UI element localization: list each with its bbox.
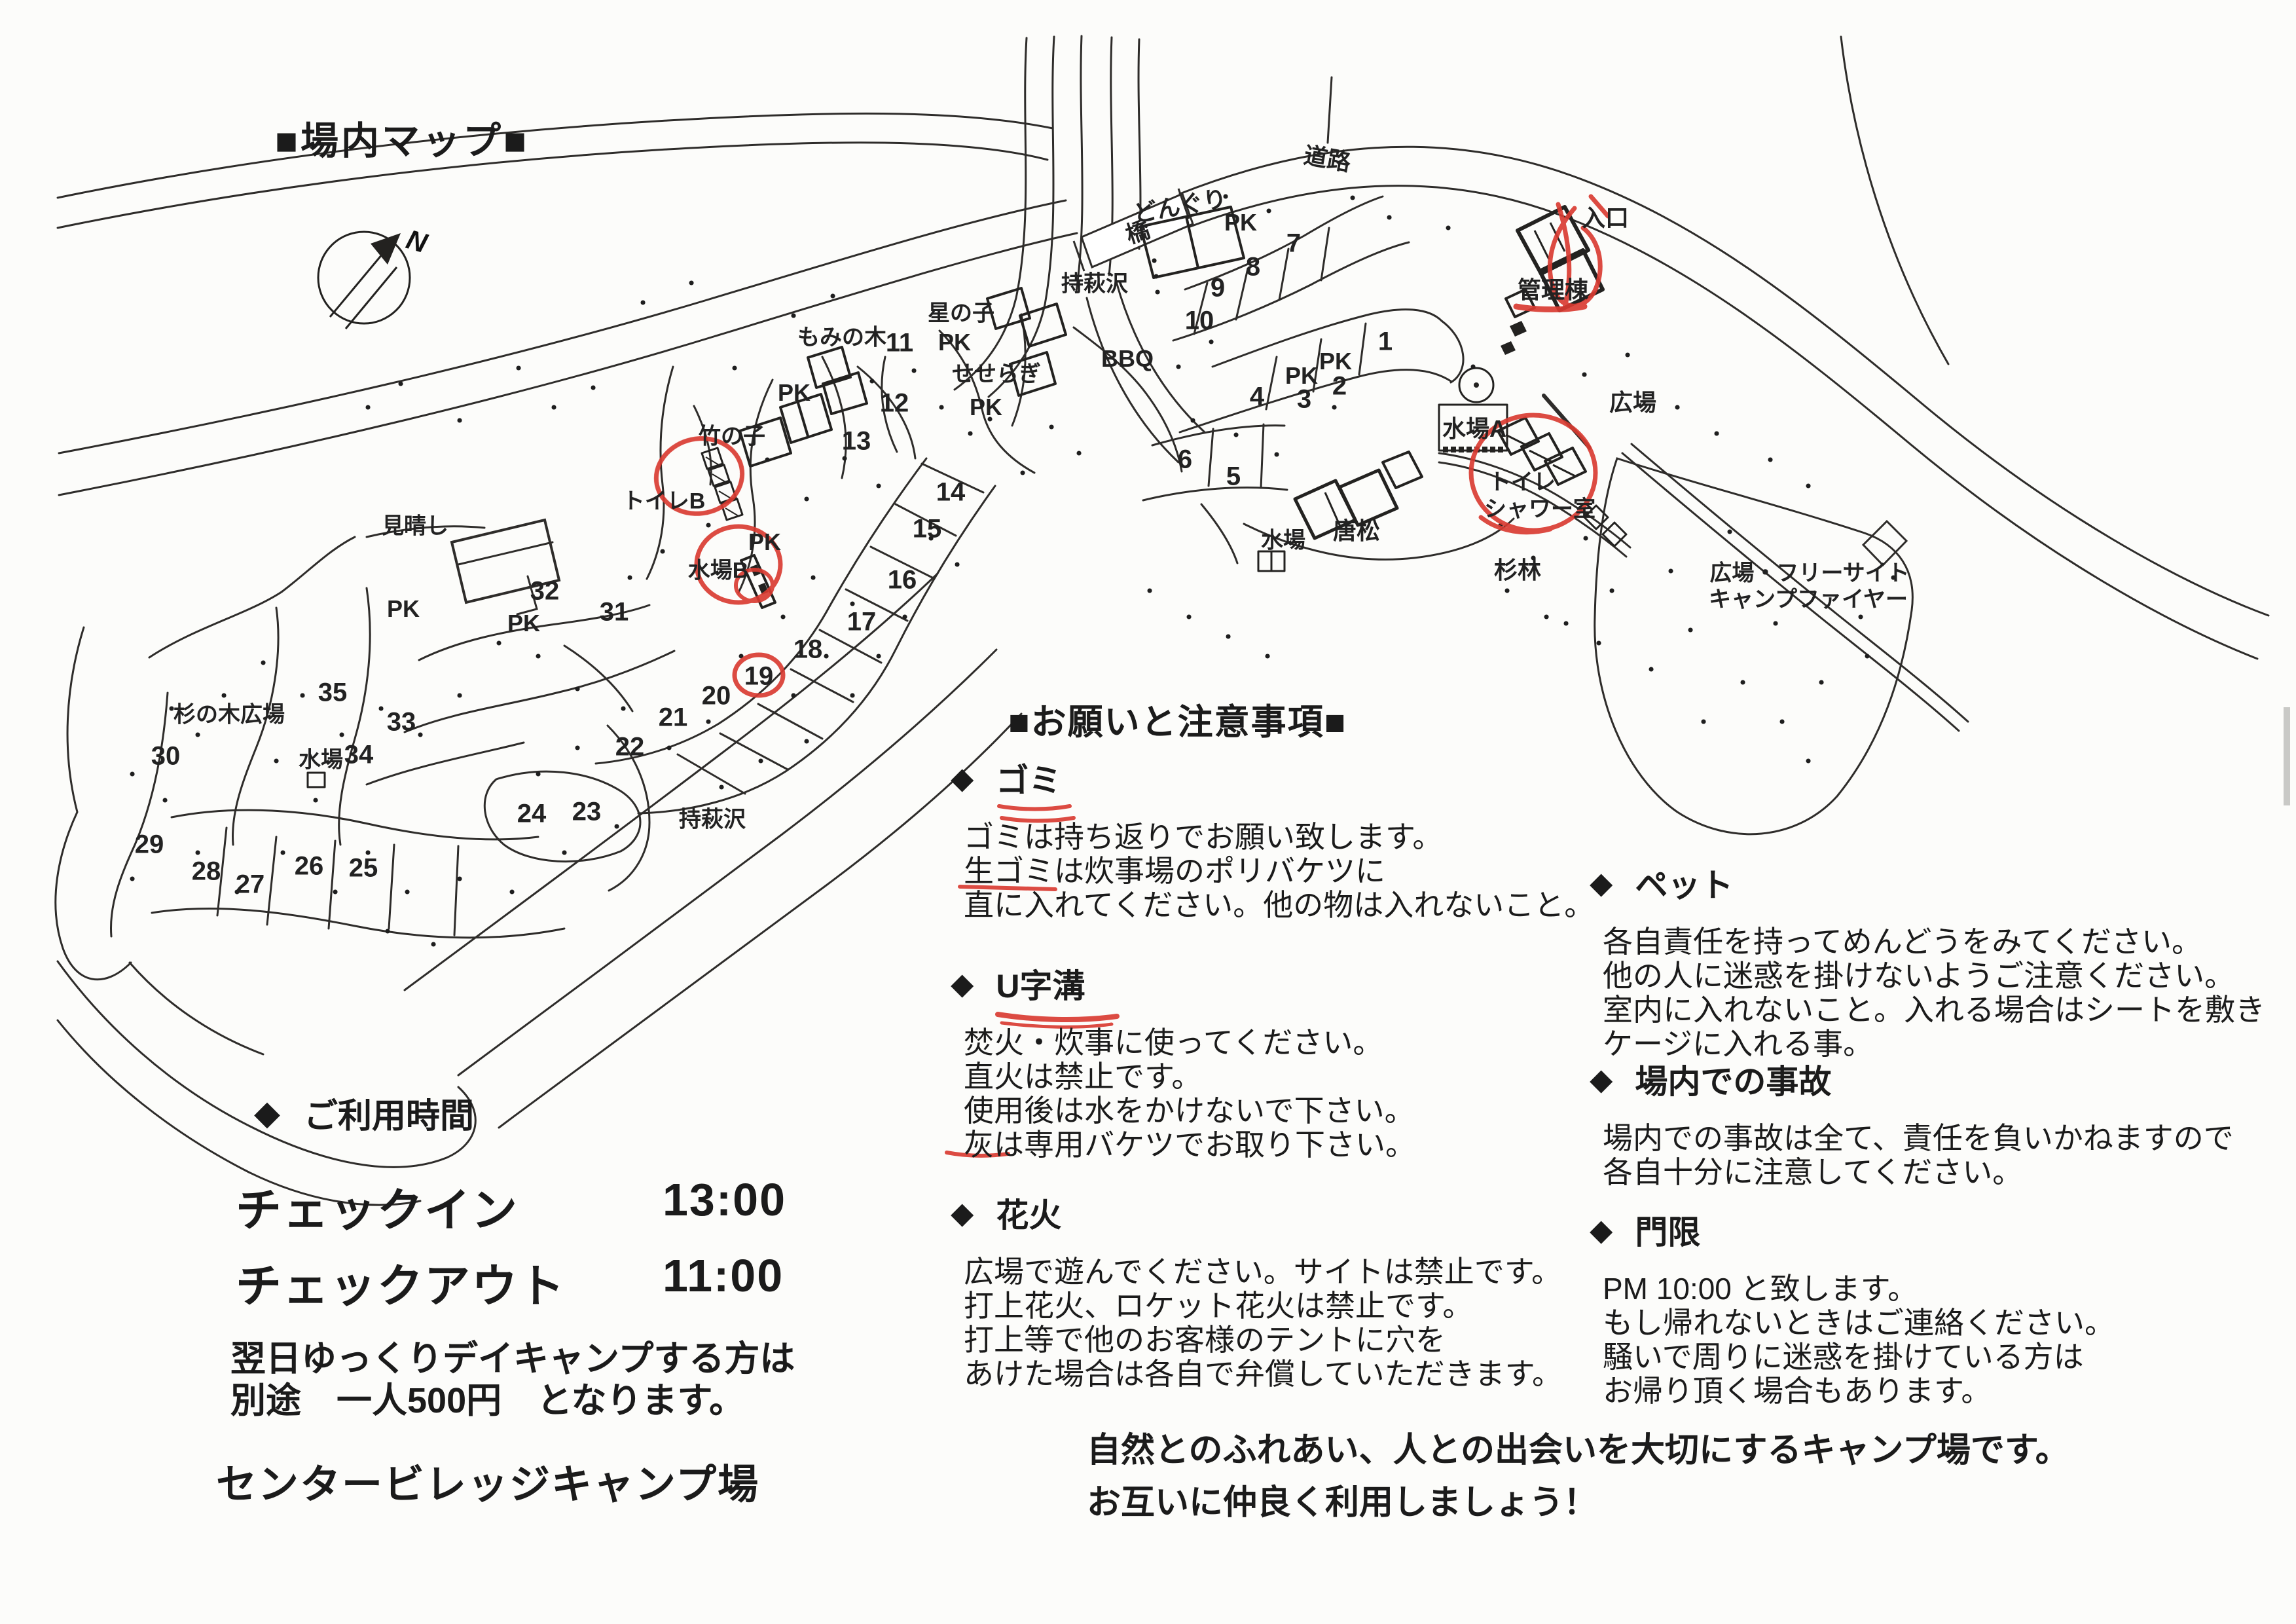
site-number: 26 [295, 852, 324, 881]
map-label: 見晴し [382, 508, 448, 540]
site-number: 21 [659, 703, 688, 733]
map-label: 杉林 [1494, 551, 1541, 585]
site-number: 35 [318, 678, 348, 708]
diamond-bullet-icon: ◆ [254, 1094, 280, 1133]
site-number: 30 [151, 742, 181, 771]
checkout-label: チェックアウト [236, 1249, 566, 1316]
site-number: 20 [702, 682, 731, 711]
notice-line: 他の人に迷惑を掛けないようご注意ください。 [1603, 959, 2265, 993]
page-title: ■場内マップ■ [275, 110, 529, 165]
notice-line: ゴミは持ち返りでお願い致します。 [964, 820, 1594, 854]
notice-line: 焚火・炊事に使ってください。 [964, 1025, 1415, 1060]
site-number: 19 [744, 662, 774, 692]
section-accidents-title: 場内での事故 [1635, 1056, 1831, 1103]
checkin-time: 13:00 [663, 1173, 786, 1226]
notice-line: 生ゴミは炊事場のポリバケツに [964, 854, 1594, 888]
site-number: 13 [842, 427, 871, 456]
site-number: 25 [349, 854, 378, 883]
notices-header: ■お願いと注意事項■ [1008, 693, 1347, 745]
site-number: 2 [1332, 372, 1347, 401]
usage-hours-title: ご利用時間 [304, 1088, 474, 1137]
diamond-bullet-icon: ◆ [1590, 1061, 1613, 1097]
map-label: 入口 [1582, 199, 1629, 233]
section-trash-body: ゴミは持ち返りでお願い致します。生ゴミは炊事場のポリバケツに直に入れてください。… [951, 820, 1594, 922]
site-number: 32 [530, 577, 560, 606]
site-number: 4 [1250, 382, 1264, 412]
map-label: PK [970, 394, 1002, 421]
notice-line: 灰は専用バケツでお取り下さい。 [964, 1128, 1415, 1162]
site-number: 8 [1246, 253, 1260, 282]
diamond-bullet-icon: ◆ [951, 760, 974, 796]
site-number: 18 [793, 635, 823, 665]
map-label: 水場 [299, 742, 343, 774]
scanned-campsite-guide: N ■場内マップ■ 橋 どんぐり [0, 0, 2296, 1624]
notice-line: 室内に入れないこと。入れる場合はシートを敷き [1603, 993, 2265, 1027]
compass-icon: N [318, 223, 431, 329]
map-label: PK [938, 329, 971, 356]
site-number: 6 [1178, 445, 1192, 475]
section-pets-heading: ◆ペット [1590, 859, 2265, 906]
map-label: PK [507, 610, 540, 637]
site-number: 5 [1226, 462, 1241, 492]
diamond-bullet-icon: ◆ [1590, 865, 1613, 900]
usage-hours-heading: ◆ ご利用時間 [254, 1088, 474, 1137]
map-label: シャワー室 [1484, 491, 1595, 523]
site-number: 29 [135, 830, 164, 860]
map-label: PK [387, 595, 420, 623]
section-accidents-body: 場内での事故は全て、責任を負いかねますので各自十分に注意してください。 [1590, 1121, 2234, 1189]
checkout-time: 11:00 [663, 1249, 784, 1302]
diamond-bullet-icon: ◆ [951, 1195, 974, 1230]
map-label: 星の子 [928, 295, 994, 327]
map-label: トイレB [623, 483, 706, 515]
section-pets-title: ペット [1635, 859, 1733, 906]
building-shapes [308, 207, 1626, 787]
section-u-gutter-body: 焚火・炊事に使ってください。直火は禁止です。使用後は水をかけないで下さい。灰は専… [951, 1025, 1415, 1162]
notice-line: お帰り頂く場合もあります。 [1603, 1374, 2115, 1408]
map-label: 水場A [1442, 410, 1506, 444]
diamond-bullet-icon: ◆ [1590, 1212, 1613, 1247]
section-trash: ◆ゴミ ゴミは持ち返りでお願い致します。生ゴミは炊事場のポリバケツに直に入れてく… [951, 754, 1594, 922]
map-label: 管理棟 [1518, 271, 1588, 305]
section-trash-heading: ◆ゴミ [951, 754, 1594, 802]
site-number: 3 [1297, 385, 1311, 415]
notice-line: 各自十分に注意してください。 [1603, 1155, 2234, 1189]
section-fireworks-body: 広場で遊んでください。サイトは禁止です。打上花火、ロケット花火は禁止です。打上等… [951, 1255, 1562, 1391]
map-label: 持萩沢 [1061, 266, 1128, 298]
daycamp-note-line-2: 別途 一人500円 となります。 [230, 1371, 744, 1423]
map-label: 竹の子 [699, 418, 765, 451]
notice-line: 打上等で他のお客様のテントに穴を [964, 1323, 1562, 1357]
site-number: 9 [1211, 274, 1225, 303]
notice-line: あけた場合は各自で弁償していただきます。 [964, 1357, 1562, 1391]
section-u-gutter-heading: ◆U字溝 [951, 960, 1415, 1007]
map-label: 杉の木広場 [173, 697, 285, 729]
site-number: 31 [600, 598, 629, 627]
checkin-label: チェックイン [236, 1173, 519, 1240]
site-number: 17 [847, 608, 877, 637]
section-curfew-heading: ◆門限 [1590, 1206, 2115, 1253]
site-number: 11 [886, 329, 913, 358]
section-pets-body: 各自責任を持ってめんどうをみてください。他の人に迷惑を掛けないようご注意ください… [1590, 925, 2265, 1061]
site-number: 24 [517, 800, 547, 829]
map-label: 水場B [688, 553, 749, 585]
map-label: もみの木 [797, 320, 886, 352]
section-curfew: ◆門限 PM 10:00 と致します。もし帰れないときはご連絡ください。騒いで周… [1590, 1206, 2115, 1408]
section-trash-title: ゴミ [996, 754, 1061, 802]
map-label: BBQ [1101, 345, 1154, 373]
section-accidents: ◆場内での事故 場内での事故は全て、責任を負いかねますので各自十分に注意してくだ… [1590, 1056, 2234, 1189]
map-label: PK [778, 379, 811, 407]
section-fireworks-title: 花火 [996, 1189, 1061, 1236]
site-number: 22 [615, 733, 645, 762]
section-curfew-title: 門限 [1635, 1206, 1700, 1253]
section-u-gutter-title: U字溝 [996, 960, 1085, 1007]
site-number: 14 [936, 478, 966, 507]
site-number: 10 [1185, 306, 1214, 336]
map-label: 水場 [1261, 523, 1305, 555]
footer-message-line-1: 自然とのふれあい、人との出会いを大切にするキャンプ場です。 [1087, 1422, 2069, 1471]
site-number: 7 [1286, 229, 1301, 259]
site-number: 28 [192, 857, 221, 887]
notice-line: PM 10:00 と致します。 [1603, 1272, 2115, 1306]
notice-line: もし帰れないときはご連絡ください。 [1603, 1306, 2115, 1340]
map-label: 唐松 [1333, 512, 1380, 546]
section-accidents-heading: ◆場内での事故 [1590, 1056, 2234, 1103]
map-label: せせらぎ [952, 356, 1041, 388]
section-u-gutter: ◆U字溝 焚火・炊事に使ってください。直火は禁止です。使用後は水をかけないで下さ… [951, 960, 1415, 1162]
site-number: 27 [236, 870, 265, 900]
section-fireworks-heading: ◆花火 [951, 1189, 1562, 1236]
diamond-bullet-icon: ◆ [951, 966, 974, 1001]
footer-message-line-2: お互いに仲良く利用しましょう！ [1087, 1475, 1597, 1524]
site-number: 16 [888, 566, 917, 595]
notice-line: 直に入れてください。他の物は入れないこと。 [964, 888, 1594, 922]
map-label: 持萩沢 [679, 802, 746, 834]
compass-north-label: N [403, 223, 432, 259]
site-number: 33 [387, 708, 416, 737]
notice-line: 使用後は水をかけないで下さい。 [964, 1094, 1415, 1128]
site-number: 34 [344, 741, 374, 770]
map-label: PK [1224, 209, 1257, 236]
section-fireworks: ◆花火 広場で遊んでください。サイトは禁止です。打上花火、ロケット花火は禁止です… [951, 1189, 1562, 1391]
notice-line: 打上花火、ロケット花火は禁止です。 [964, 1289, 1562, 1323]
site-number: 1 [1378, 327, 1393, 357]
map-label: PK [748, 528, 781, 556]
section-pets: ◆ペット 各自責任を持ってめんどうをみてください。他の人に迷惑を掛けないようご注… [1590, 859, 2265, 1061]
map-label: 広場 [1609, 384, 1656, 418]
site-number: 23 [572, 798, 602, 827]
notice-line: 騒いで周りに迷惑を掛けている方は [1603, 1340, 2115, 1374]
notice-line: 直火は禁止です。 [964, 1060, 1415, 1094]
notice-line: 場内での事故は全て、責任を負いかねますので [1603, 1121, 2234, 1155]
site-number: 12 [880, 389, 909, 418]
section-curfew-body: PM 10:00 と致します。もし帰れないときはご連絡ください。騒いで周りに迷惑… [1590, 1272, 2115, 1408]
map-label: キャンプファイヤー [1709, 581, 1908, 614]
notice-line: 広場で遊んでください。サイトは禁止です。 [964, 1255, 1562, 1289]
site-number: 15 [913, 515, 942, 544]
notice-line: 各自責任を持ってめんどうをみてください。 [1603, 925, 2265, 959]
campsite-name: センタービレッジキャンプ場 [216, 1451, 759, 1510]
